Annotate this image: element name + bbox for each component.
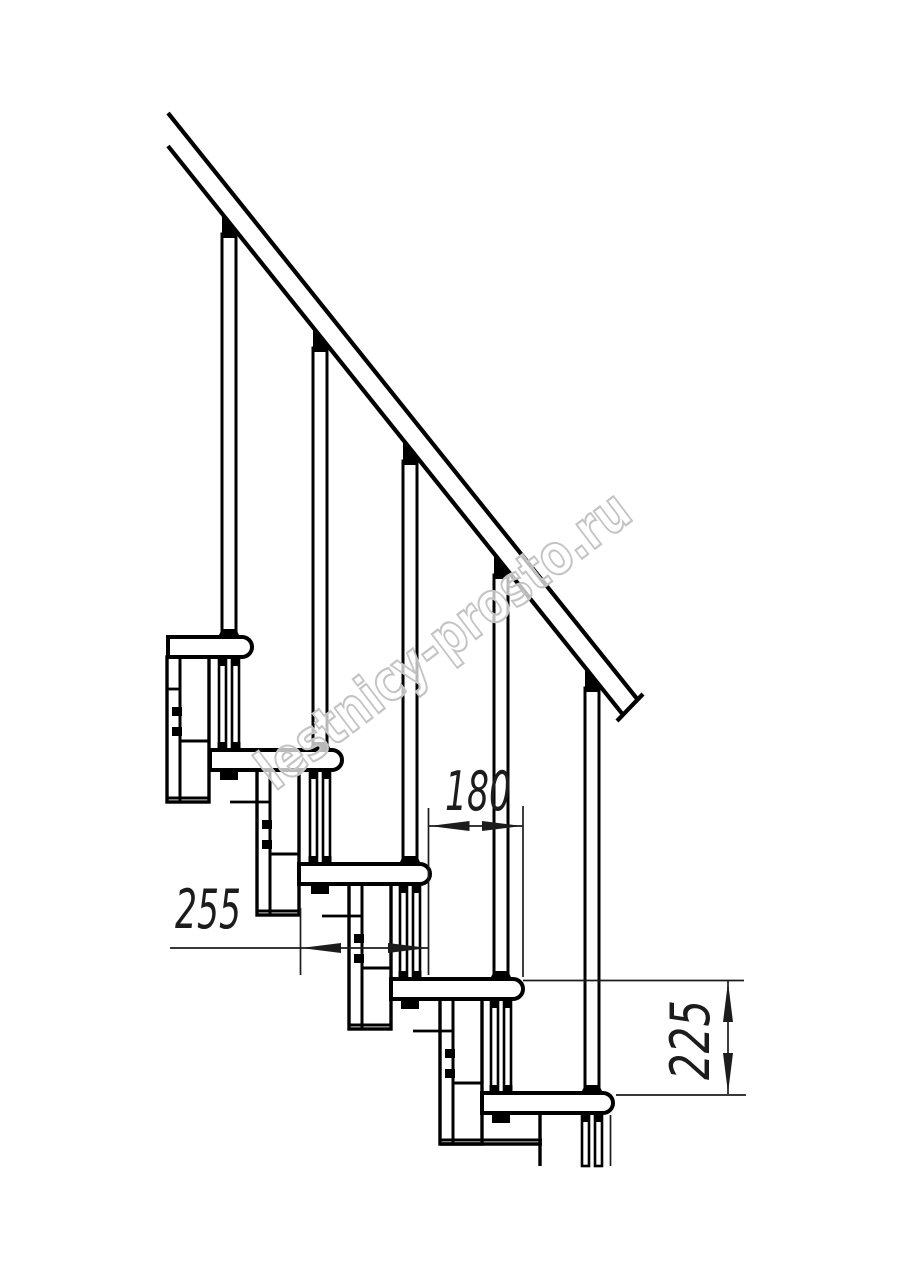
rod-nut xyxy=(492,1115,510,1123)
rod-foot xyxy=(412,971,422,979)
baluster xyxy=(581,667,603,1093)
drawing-canvas: 180255225lestnicy-prosto.ru xyxy=(0,0,914,1280)
rod-foot xyxy=(490,1085,500,1093)
rod-cap xyxy=(594,1114,603,1122)
bolt xyxy=(445,1049,455,1058)
bolt xyxy=(262,840,272,849)
tread xyxy=(168,637,252,657)
rod-cap xyxy=(218,658,227,666)
rod-foot xyxy=(218,742,228,750)
bolt xyxy=(445,1069,455,1078)
support-column xyxy=(167,657,209,802)
rod-nut xyxy=(401,1001,419,1009)
rod-cap xyxy=(399,885,408,893)
rod-cap xyxy=(490,1000,499,1008)
rod-foot xyxy=(503,1085,513,1093)
rod-cap xyxy=(581,1114,590,1122)
dimension-label-225: 225 xyxy=(659,1000,722,1080)
bolt xyxy=(354,954,364,963)
bolt xyxy=(262,820,272,829)
rod-nut xyxy=(311,886,329,894)
rod-foot xyxy=(231,742,241,750)
dimension-label-180: 180 xyxy=(445,760,511,823)
tread xyxy=(391,979,523,999)
rod-cap xyxy=(503,1000,512,1008)
tread xyxy=(299,864,430,884)
rod-cap xyxy=(412,885,421,893)
tread xyxy=(482,1093,613,1113)
rod-cap xyxy=(231,658,240,666)
staircase-technical-drawing: 180255225lestnicy-prosto.ru xyxy=(0,0,914,1280)
bolt xyxy=(172,707,182,716)
rod-foot xyxy=(309,856,319,864)
bolt xyxy=(172,727,182,736)
bolt xyxy=(354,934,364,943)
rod-nut xyxy=(220,772,238,780)
rod-foot xyxy=(399,971,409,979)
rod-foot xyxy=(322,856,332,864)
dimension-label-255: 255 xyxy=(175,878,241,941)
baluster xyxy=(218,213,240,637)
